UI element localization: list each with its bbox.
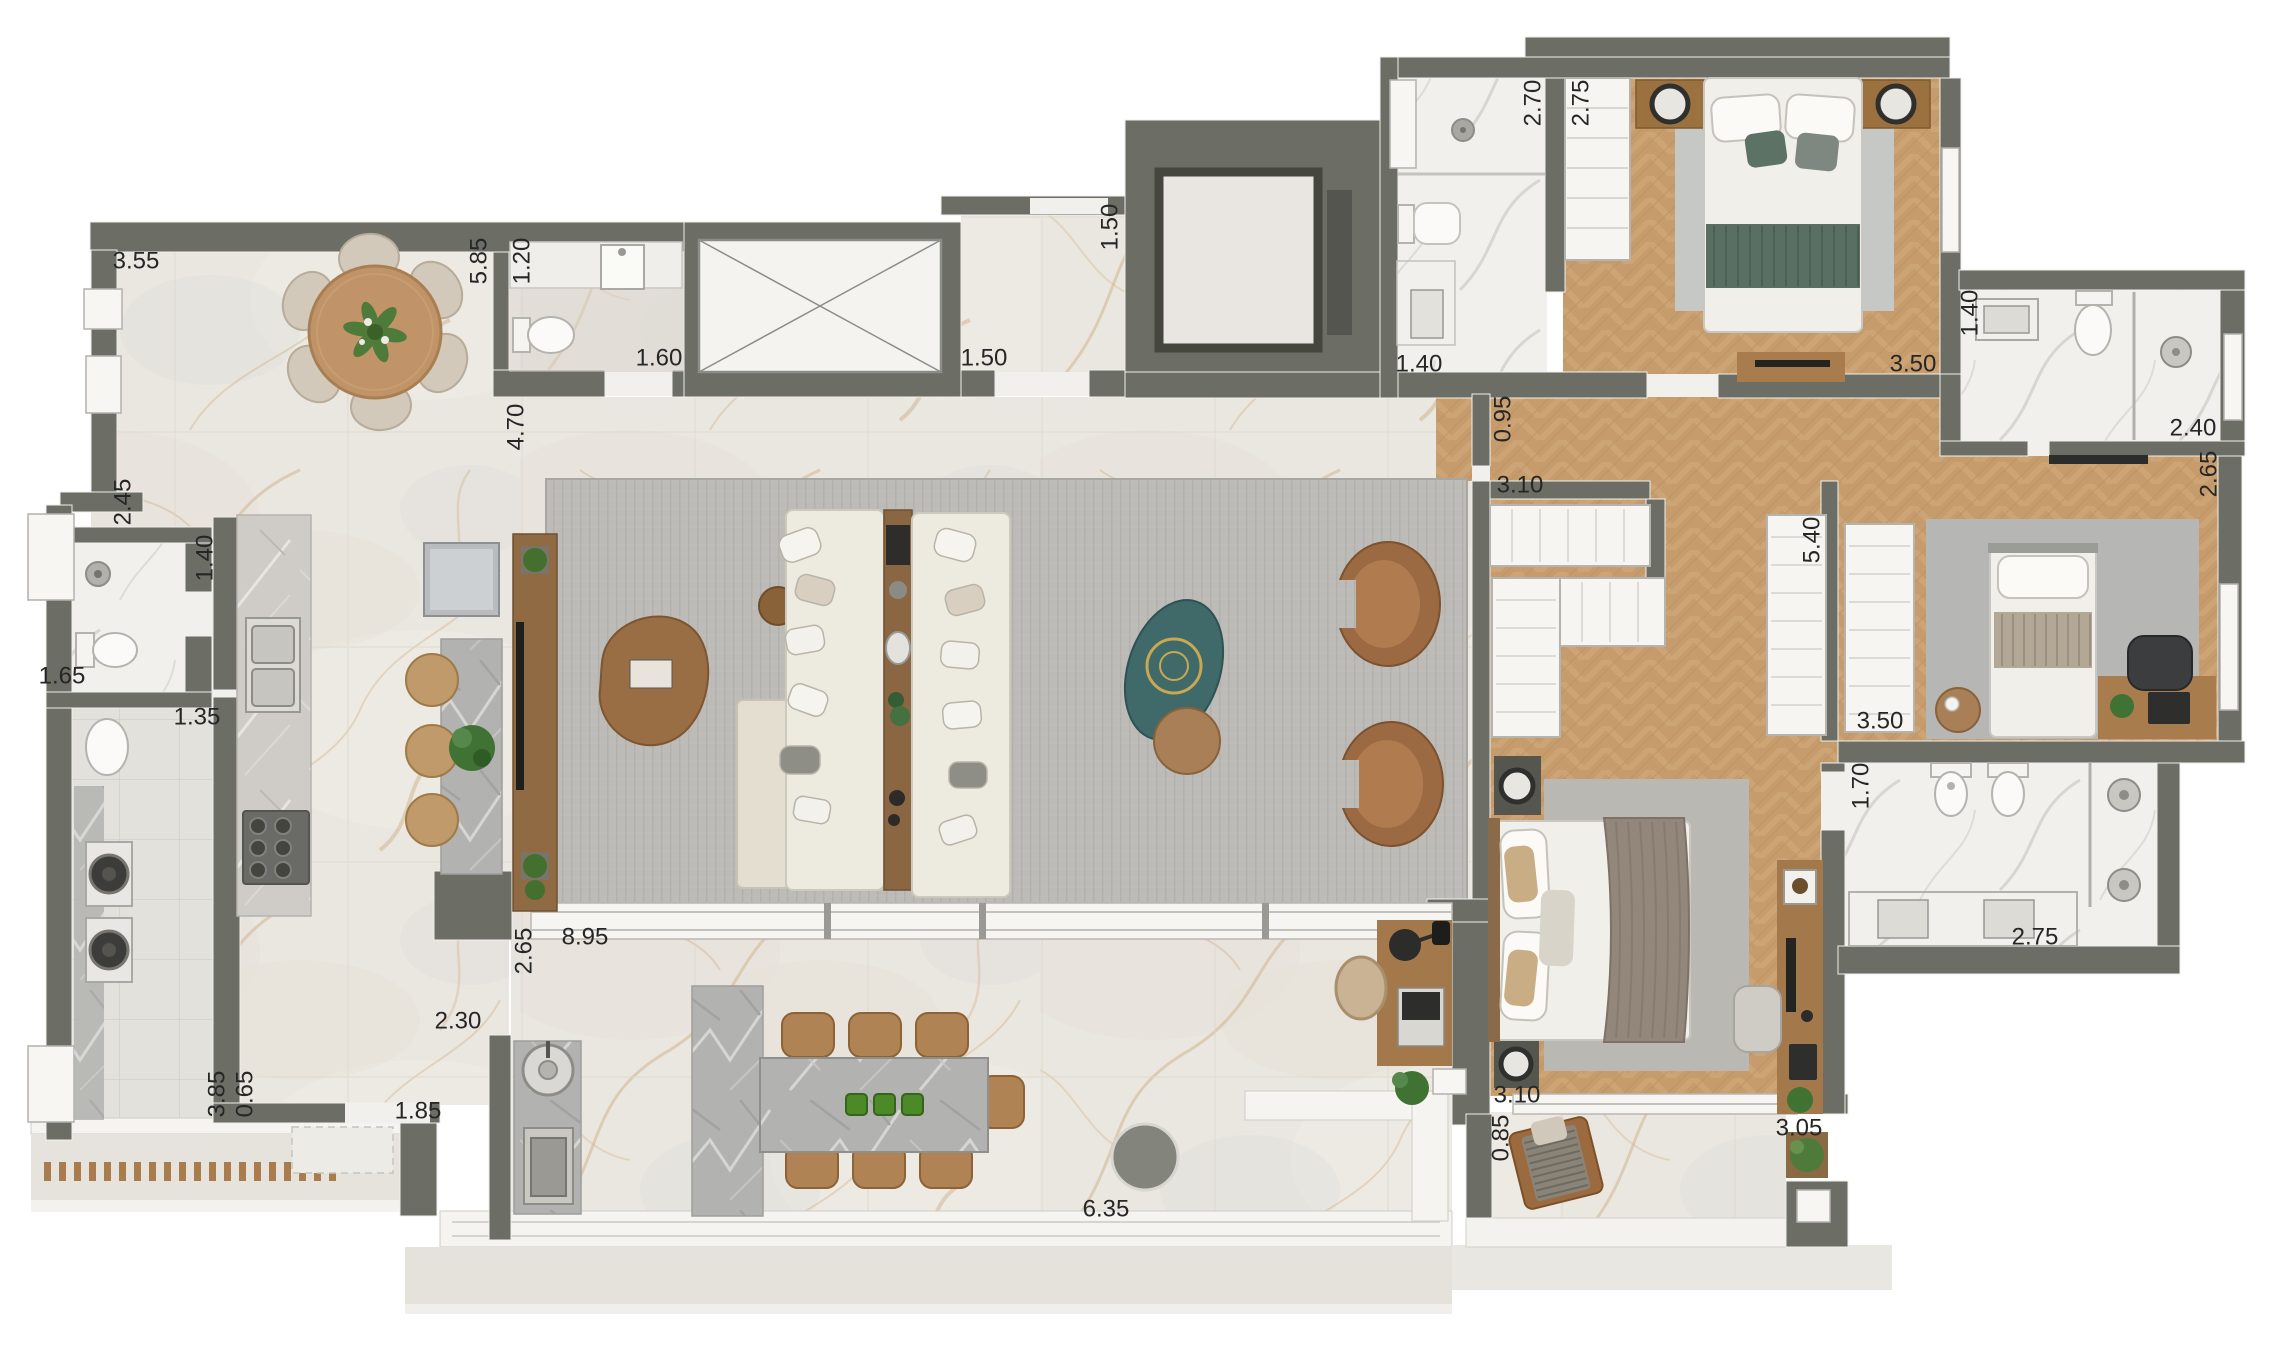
svg-text:1.40: 1.40 xyxy=(191,535,218,582)
svg-text:4.70: 4.70 xyxy=(502,404,529,451)
svg-text:3.10: 3.10 xyxy=(1494,1081,1541,1108)
svg-text:1.20: 1.20 xyxy=(508,238,535,285)
svg-text:1.85: 1.85 xyxy=(395,1097,442,1124)
svg-text:3.10: 3.10 xyxy=(1497,471,1544,498)
svg-text:3.50: 3.50 xyxy=(1890,350,1937,377)
svg-text:2.30: 2.30 xyxy=(435,1007,482,1034)
svg-text:1.50: 1.50 xyxy=(961,344,1008,371)
svg-text:3.55: 3.55 xyxy=(113,247,160,274)
svg-text:1.40: 1.40 xyxy=(1956,290,1983,337)
svg-text:3.85: 3.85 xyxy=(203,1071,230,1118)
svg-text:2.75: 2.75 xyxy=(1567,80,1594,127)
svg-text:0.65: 0.65 xyxy=(231,1071,258,1118)
svg-text:1.70: 1.70 xyxy=(1847,763,1874,810)
svg-text:0.85: 0.85 xyxy=(1487,1115,1514,1162)
svg-text:1.40: 1.40 xyxy=(1396,350,1443,377)
svg-text:2.70: 2.70 xyxy=(1519,80,1546,127)
svg-text:1.35: 1.35 xyxy=(174,703,221,730)
svg-text:8.95: 8.95 xyxy=(562,923,609,950)
svg-text:1.60: 1.60 xyxy=(636,344,683,371)
svg-text:2.40: 2.40 xyxy=(2170,414,2217,441)
svg-text:5.40: 5.40 xyxy=(1798,517,1825,564)
svg-text:2.65: 2.65 xyxy=(510,928,537,975)
svg-text:3.05: 3.05 xyxy=(1776,1114,1823,1141)
svg-text:5.85: 5.85 xyxy=(465,238,492,285)
svg-text:6.35: 6.35 xyxy=(1083,1195,1130,1222)
svg-text:2.75: 2.75 xyxy=(2012,923,2059,950)
svg-text:0.95: 0.95 xyxy=(1489,396,1516,443)
svg-text:1.50: 1.50 xyxy=(1096,204,1123,251)
svg-text:3.50: 3.50 xyxy=(1857,707,1904,734)
svg-text:1.65: 1.65 xyxy=(39,662,86,689)
svg-text:2.65: 2.65 xyxy=(2195,451,2222,498)
svg-text:2.45: 2.45 xyxy=(109,479,136,526)
